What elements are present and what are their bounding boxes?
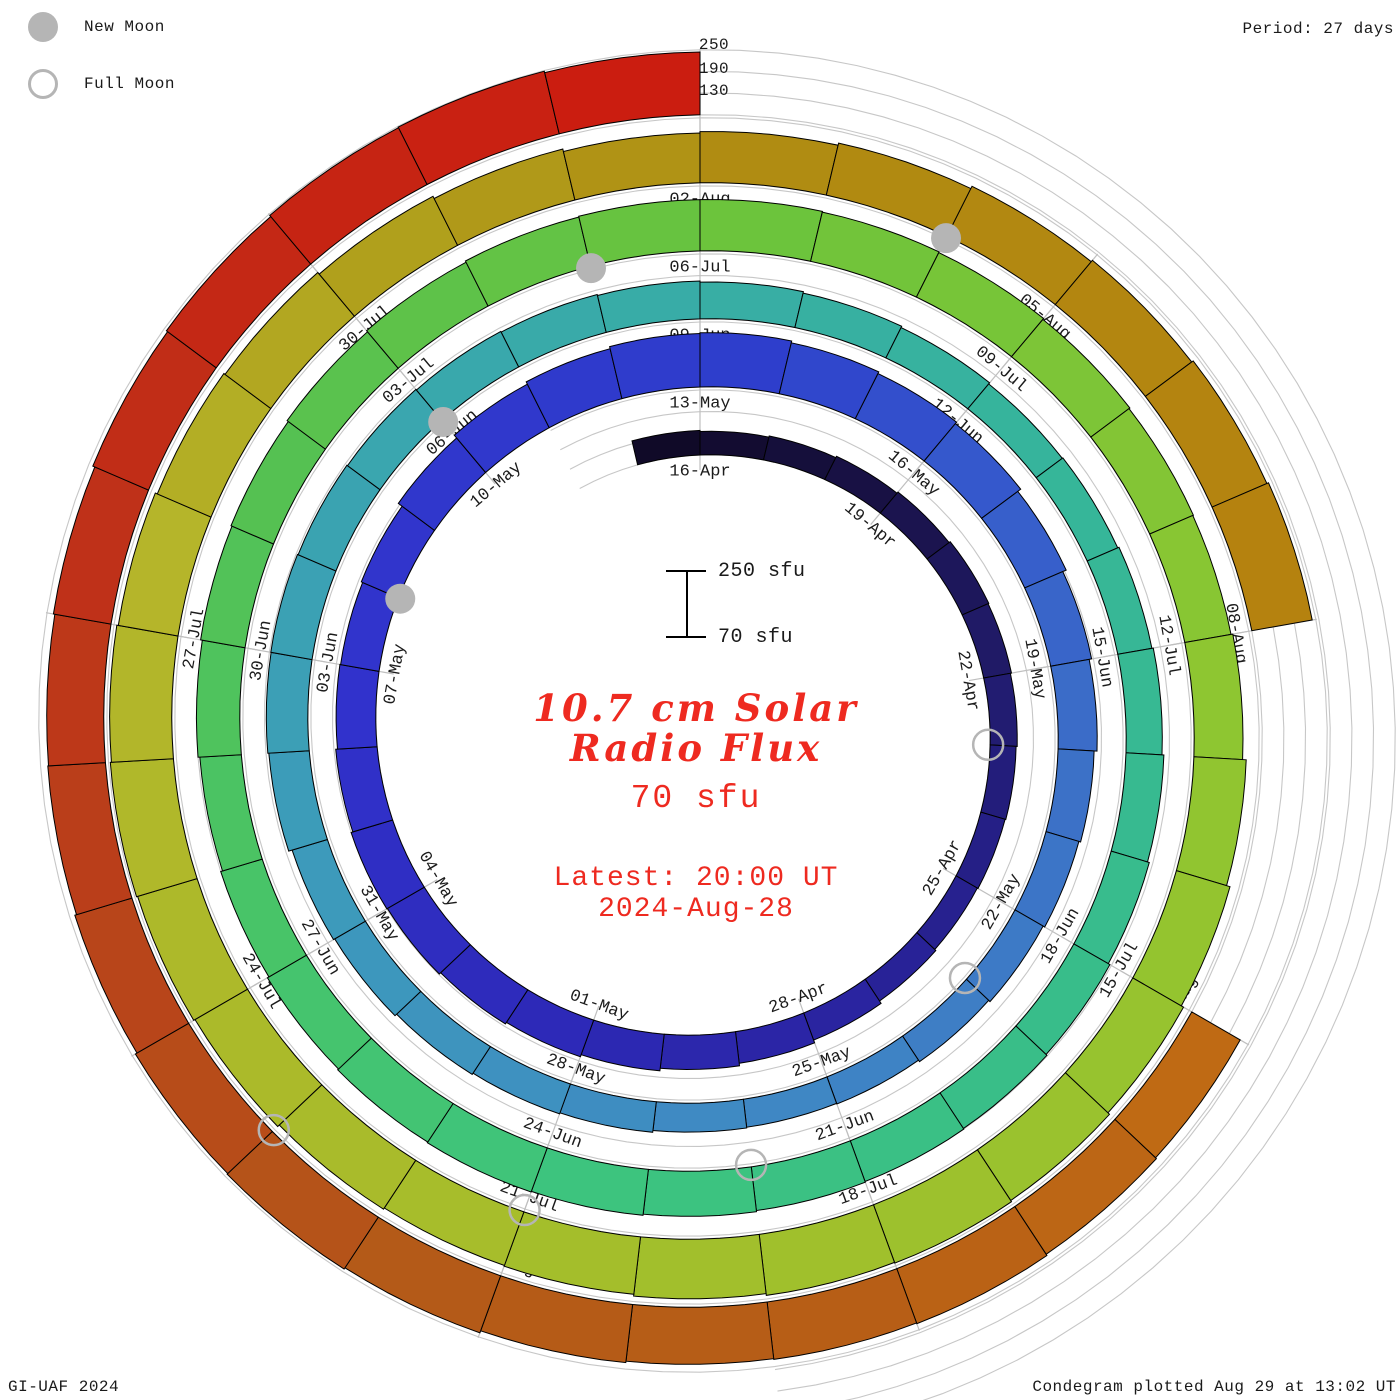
scale-bar-bottom-label: 70 sfu: [718, 626, 793, 649]
day-flux-bar: [880, 492, 949, 559]
new-moon-marker: [576, 253, 606, 283]
day-flux-bar: [634, 1234, 767, 1298]
day-flux-bar: [626, 1302, 774, 1364]
footer-plotted-label: Condegram plotted Aug 29 at 13:02 UT: [1032, 1378, 1396, 1396]
period-label: Period: 27 days: [1242, 20, 1394, 38]
moon-legend: New Moon Full Moon: [28, 12, 175, 99]
new-moon-icon: [28, 12, 58, 42]
latest-time-label: Latest: 20:00 UT: [346, 863, 1046, 894]
day-flux-bar: [903, 979, 989, 1061]
scale-bar-top-label: 250 sfu: [718, 560, 806, 583]
day-flux-bar: [1176, 757, 1246, 886]
day-flux-bar: [1133, 871, 1230, 1006]
chart-title-line1: 10.7 cm Solar: [346, 688, 1046, 728]
day-flux-bar: [269, 751, 328, 851]
day-flux-bar: [598, 281, 701, 332]
flux-value-label: 70 sfu: [346, 780, 1046, 817]
day-flux-bar: [743, 1077, 836, 1127]
scale-bar-bottom-cap: [666, 636, 706, 638]
day-flux-bar: [700, 282, 803, 328]
center-text-block: 10.7 cm Solar Radio Flux 70 sfu Latest: …: [346, 688, 1046, 925]
full-moon-label: Full Moon: [84, 75, 175, 93]
radial-scale-label-190: 190: [684, 60, 744, 78]
day-flux-bar: [660, 1032, 739, 1070]
day-flux-bar: [1111, 753, 1164, 862]
day-flux-bar: [581, 1020, 664, 1071]
footer-credit: GI-UAF 2024: [8, 1378, 119, 1396]
condegram-page: { "legend": { "new_moon_label": "New Moo…: [0, 0, 1400, 1400]
date-tick-label: 13-May: [669, 394, 730, 413]
day-flux-bar: [47, 614, 111, 766]
day-flux-bar: [110, 625, 178, 762]
day-flux-bar: [196, 640, 245, 757]
new-moon-marker: [931, 223, 961, 253]
day-flux-bar: [1118, 648, 1163, 755]
day-flux-bar: [700, 200, 822, 262]
new-moon-marker: [428, 407, 458, 437]
day-flux-bar: [632, 430, 700, 464]
day-flux-bar: [266, 652, 312, 753]
day-flux-bar: [545, 52, 700, 134]
day-flux-bar: [736, 1013, 815, 1063]
day-flux-bar: [700, 333, 792, 394]
radial-scale-label-250: 250: [684, 36, 744, 54]
day-flux-bar: [610, 334, 700, 399]
radial-scale-label-130: 130: [684, 82, 744, 100]
date-tick-label: 12-Jul: [1153, 614, 1182, 678]
scale-bar-stem: [686, 570, 688, 638]
chart-title-line2: Radio Flux: [346, 728, 1046, 768]
day-flux-bar: [764, 436, 836, 480]
date-tick-label: 06-Jul: [669, 258, 730, 277]
full-moon-icon: [28, 69, 58, 99]
day-flux-bar: [927, 542, 989, 615]
day-flux-bar: [865, 933, 936, 1001]
new-moon-marker: [385, 584, 415, 614]
latest-date-label: 2024-Aug-28: [346, 894, 1046, 925]
new-moon-label: New Moon: [84, 18, 165, 36]
date-tick-label: 16-Apr: [669, 462, 730, 481]
day-flux-bar: [1046, 749, 1094, 842]
day-flux-bar: [700, 431, 769, 460]
day-flux-bar: [653, 1099, 747, 1132]
